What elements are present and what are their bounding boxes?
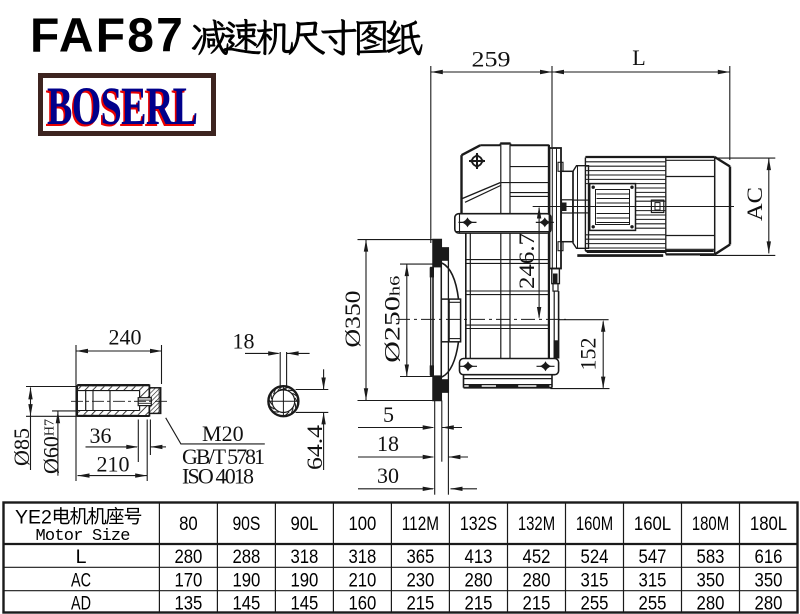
svg-text:210: 210 (97, 452, 130, 477)
svg-text:18: 18 (377, 431, 399, 456)
svg-text:Ø250h6: Ø250h6 (380, 275, 405, 363)
svg-text:YE2: YE2 (15, 507, 52, 529)
svg-text:132S: 132S (460, 513, 497, 535)
svg-text:583: 583 (697, 546, 725, 568)
svg-text:215: 215 (523, 592, 551, 614)
svg-text:AD: AD (71, 592, 91, 614)
svg-text:413: 413 (465, 546, 493, 568)
svg-text:AC: AC (742, 187, 767, 221)
svg-text:160L: 160L (634, 513, 671, 535)
svg-text:215: 215 (406, 592, 434, 614)
svg-text:L: L (76, 546, 87, 568)
svg-text:160: 160 (348, 592, 376, 614)
svg-text:Ø60H7: Ø60H7 (39, 419, 64, 474)
svg-text:BOSERL: BOSERL (47, 77, 198, 137)
svg-text:547: 547 (639, 546, 667, 568)
svg-text:280: 280 (523, 569, 551, 591)
svg-text:230: 230 (406, 569, 434, 591)
svg-text:160M: 160M (576, 513, 613, 535)
svg-text:Ø85: Ø85 (9, 428, 34, 466)
svg-text:AC: AC (71, 569, 91, 591)
svg-text:M20: M20 (202, 421, 244, 446)
svg-text:524: 524 (581, 546, 609, 568)
svg-text:ISO 4018: ISO 4018 (182, 464, 254, 489)
svg-text:152: 152 (576, 338, 601, 371)
svg-text:112M: 112M (402, 513, 439, 535)
svg-text:L: L (632, 45, 645, 70)
svg-text:616: 616 (755, 546, 783, 568)
svg-text:246.7: 246.7 (514, 233, 539, 289)
svg-text:Motor Size: Motor Size (36, 527, 131, 546)
svg-text:365: 365 (406, 546, 434, 568)
svg-text:90S: 90S (232, 513, 260, 535)
svg-text:315: 315 (639, 569, 667, 591)
svg-text:170: 170 (174, 569, 202, 591)
svg-text:180L: 180L (750, 513, 787, 535)
svg-text:350: 350 (755, 569, 783, 591)
svg-text:190: 190 (232, 569, 260, 591)
svg-text:FAF87: FAF87 (30, 10, 185, 63)
svg-text:Ø350: Ø350 (340, 291, 365, 348)
svg-text:90L: 90L (290, 513, 318, 535)
svg-text:30: 30 (377, 463, 399, 488)
svg-text:132M: 132M (518, 513, 555, 535)
svg-text:318: 318 (290, 546, 318, 568)
svg-text:135: 135 (174, 592, 202, 614)
svg-text:452: 452 (523, 546, 551, 568)
svg-text:259: 259 (472, 47, 511, 72)
svg-text:255: 255 (581, 592, 609, 614)
svg-text:288: 288 (232, 546, 260, 568)
svg-text:145: 145 (290, 592, 318, 614)
svg-text:210: 210 (348, 569, 376, 591)
svg-text:280: 280 (465, 569, 493, 591)
svg-text:64.4: 64.4 (302, 425, 327, 470)
svg-text:180M: 180M (692, 513, 729, 535)
svg-text:18: 18 (233, 329, 255, 354)
svg-text:5: 5 (383, 402, 394, 427)
svg-text:145: 145 (232, 592, 260, 614)
svg-text:350: 350 (697, 569, 725, 591)
svg-text:255: 255 (639, 592, 667, 614)
svg-text:240: 240 (109, 325, 142, 350)
svg-text:100: 100 (348, 513, 376, 535)
svg-text:280: 280 (755, 592, 783, 614)
svg-text:215: 215 (465, 592, 493, 614)
svg-text:36: 36 (90, 423, 112, 448)
svg-text:280: 280 (174, 546, 202, 568)
svg-text:190: 190 (290, 569, 318, 591)
svg-text:318: 318 (348, 546, 376, 568)
svg-text:80: 80 (179, 513, 198, 535)
svg-text:280: 280 (697, 592, 725, 614)
svg-text:315: 315 (581, 569, 609, 591)
